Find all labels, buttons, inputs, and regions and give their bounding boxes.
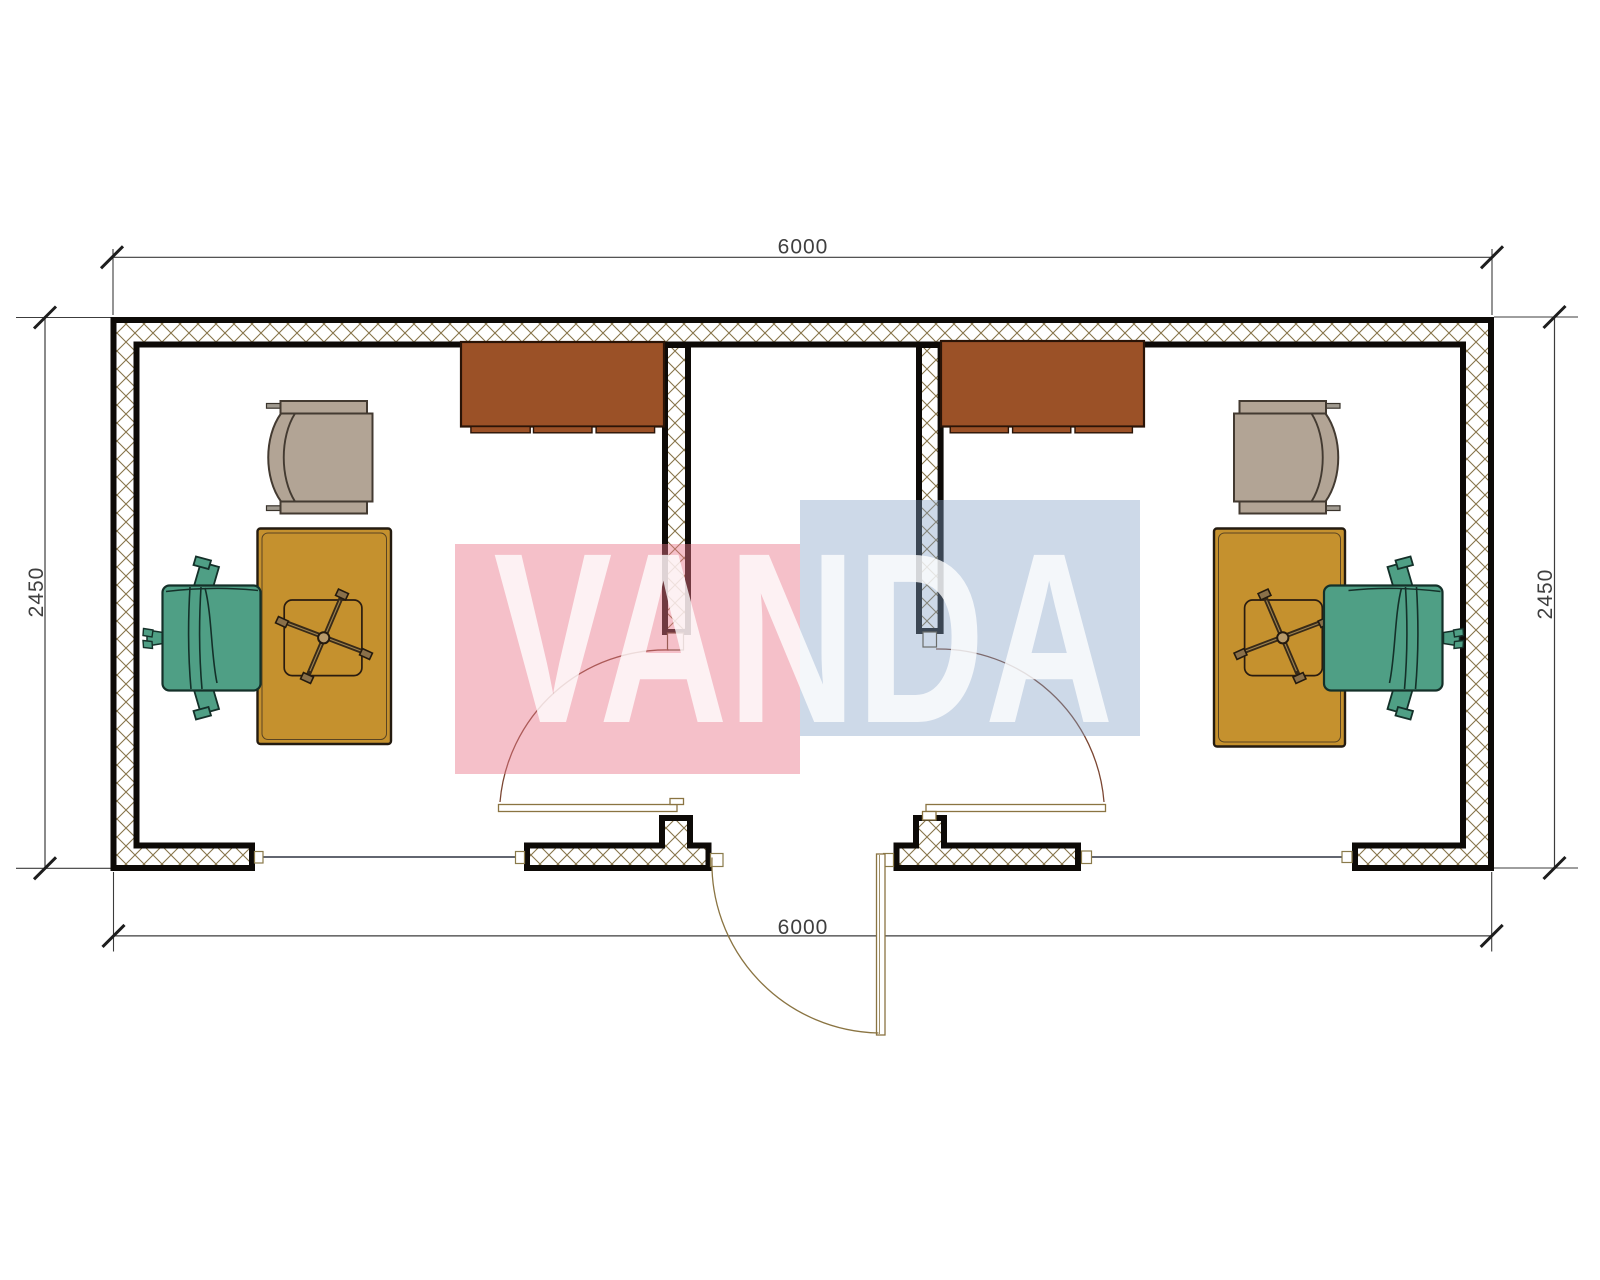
- svg-text:6000: 6000: [778, 236, 829, 259]
- svg-text:2450: 2450: [25, 567, 48, 618]
- svg-text:2450: 2450: [1534, 569, 1557, 620]
- svg-text:6000: 6000: [778, 916, 829, 939]
- svg-text:VANDA: VANDA: [494, 503, 1114, 774]
